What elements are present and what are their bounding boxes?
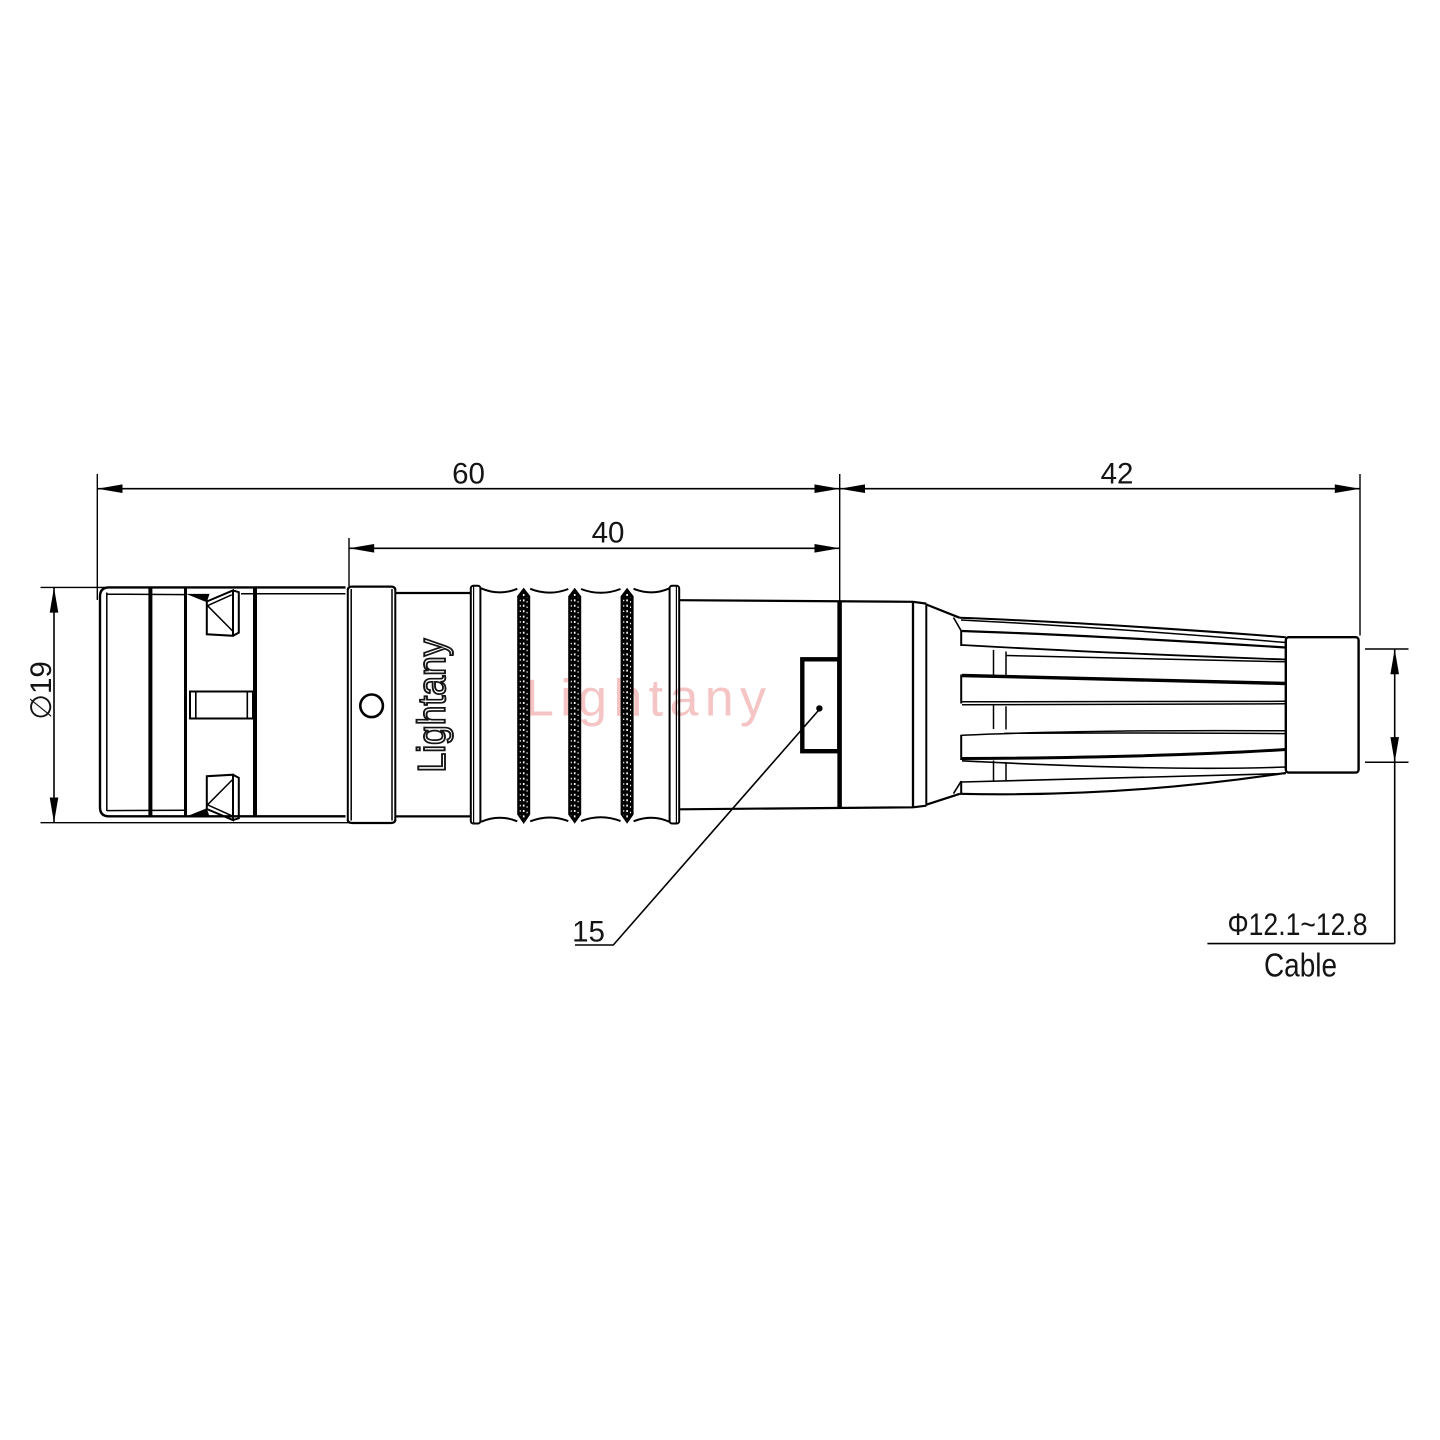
svg-text:Φ12.1~12.8: Φ12.1~12.8	[1228, 906, 1368, 942]
svg-text:∅19: ∅19	[25, 661, 58, 720]
svg-text:Cable: Cable	[1264, 947, 1337, 984]
svg-text:15: 15	[572, 916, 605, 949]
svg-text:Lightany: Lightany	[411, 638, 454, 772]
svg-text:60: 60	[452, 458, 485, 491]
svg-text:42: 42	[1101, 458, 1134, 491]
svg-text:40: 40	[592, 517, 625, 550]
